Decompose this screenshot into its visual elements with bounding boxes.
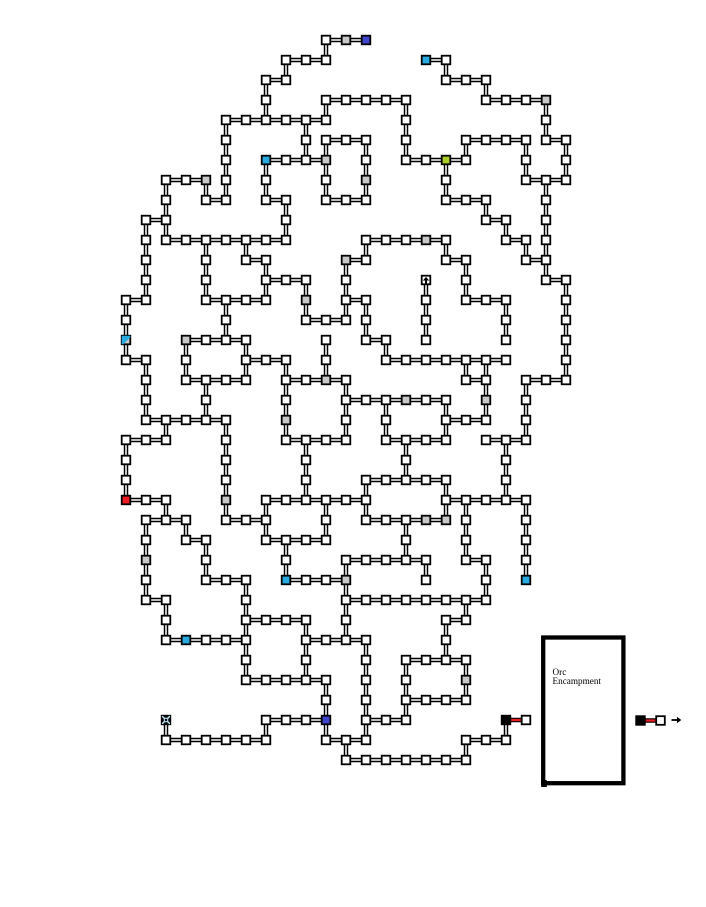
svg-text:Encampment: Encampment bbox=[553, 676, 602, 686]
